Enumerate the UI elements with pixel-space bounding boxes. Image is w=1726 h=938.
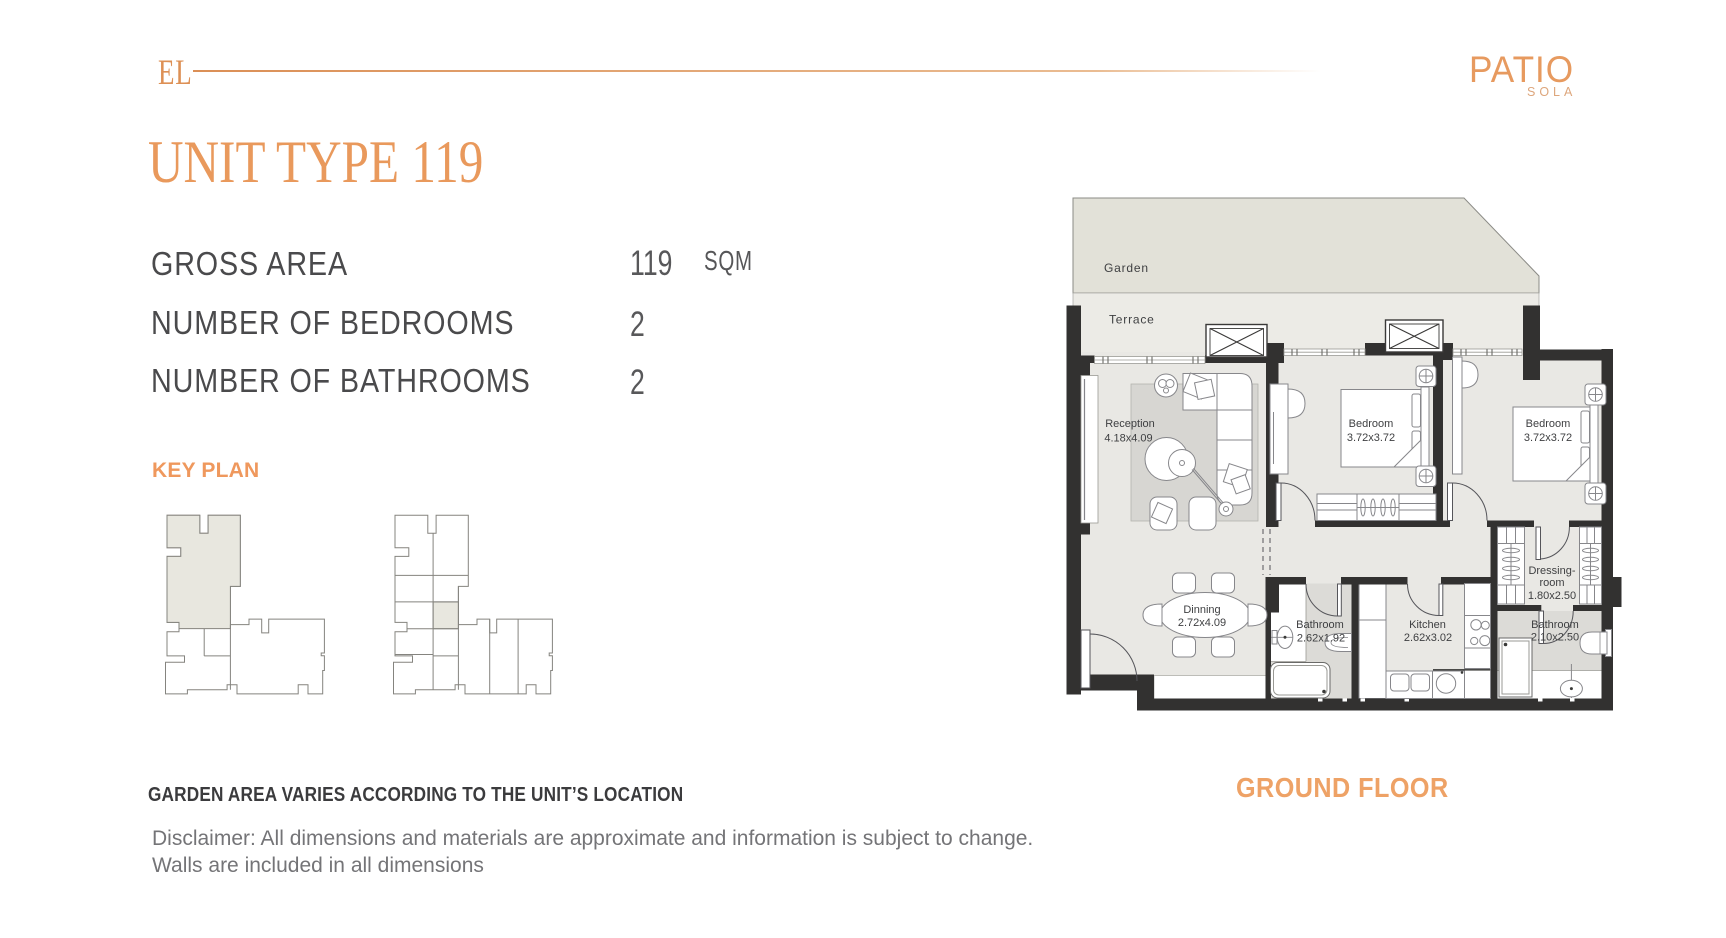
- svg-text:Bedroom: Bedroom: [1526, 418, 1571, 430]
- svg-text:Dinning: Dinning: [1183, 604, 1220, 616]
- svg-text:Reception: Reception: [1105, 418, 1155, 430]
- svg-text:2.62x3.02: 2.62x3.02: [1404, 632, 1452, 644]
- svg-text:Garden: Garden: [1104, 261, 1149, 275]
- svg-text:3.72x3.72: 3.72x3.72: [1524, 432, 1572, 444]
- svg-text:1.80x2.50: 1.80x2.50: [1528, 590, 1576, 602]
- svg-text:2.62x1.92: 2.62x1.92: [1297, 633, 1345, 645]
- svg-text:room: room: [1539, 577, 1564, 589]
- svg-text:Bedroom: Bedroom: [1349, 418, 1394, 430]
- svg-text:4.18x4.09: 4.18x4.09: [1104, 433, 1152, 445]
- svg-text:Dressing-: Dressing-: [1528, 565, 1575, 577]
- svg-text:Bathroom: Bathroom: [1296, 619, 1344, 631]
- svg-text:2.10x2.50: 2.10x2.50: [1531, 632, 1579, 644]
- svg-text:3.72x3.72: 3.72x3.72: [1347, 432, 1395, 444]
- svg-text:Kitchen: Kitchen: [1409, 619, 1446, 631]
- svg-text:Bathroom: Bathroom: [1531, 619, 1579, 631]
- svg-text:2.72x4.09: 2.72x4.09: [1178, 617, 1226, 629]
- svg-text:Terrace: Terrace: [1109, 313, 1155, 327]
